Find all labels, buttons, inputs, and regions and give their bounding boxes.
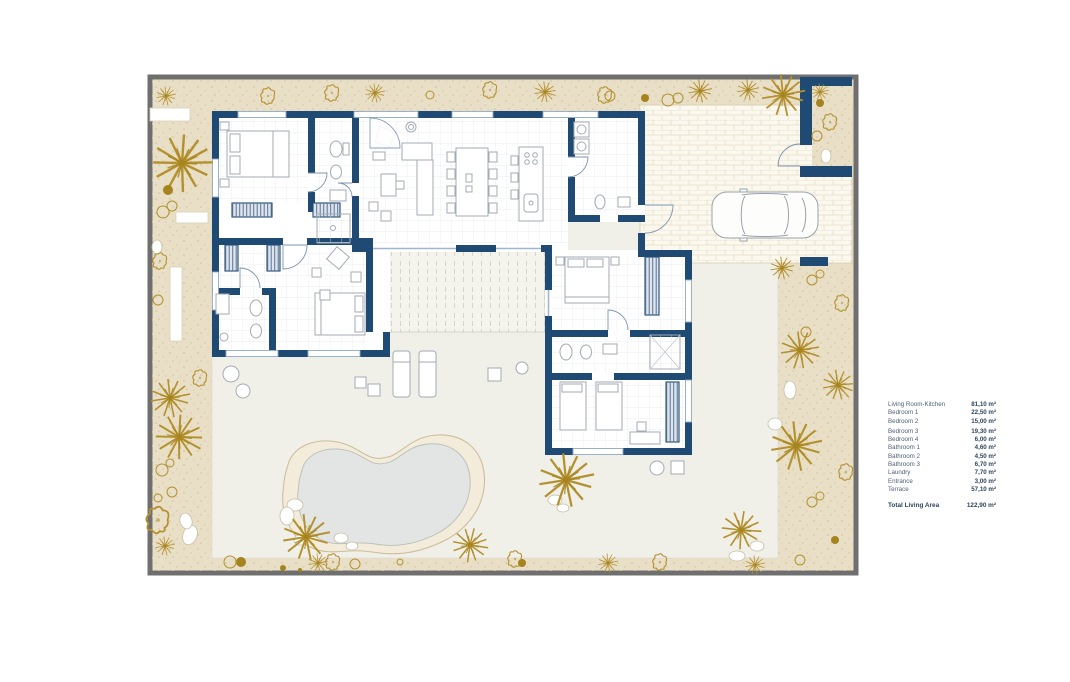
legend-row: Bedroom 3 19,30 m² — [888, 428, 996, 436]
legend-label: Terrace — [888, 486, 909, 494]
legend-label: Bedroom 2 — [888, 418, 918, 426]
legend-value: 6,70 m² — [975, 461, 996, 469]
legend-label: Bathroom 2 — [888, 453, 920, 461]
legend-row: Bathroom 2 4,50 m² — [888, 453, 996, 461]
legend-row: Bedroom 1 22,50 m² — [888, 409, 996, 417]
legend-value: 4,60 m² — [975, 444, 996, 452]
legend-value: 6,00 m² — [975, 436, 996, 444]
legend-value: 22,50 m² — [971, 409, 996, 417]
bed-double-1 — [220, 122, 289, 187]
legend-label: Bedroom 1 — [888, 409, 918, 417]
legend-value: 3,00 m² — [975, 478, 996, 486]
legend-label: Living Room-Kitchen — [888, 401, 945, 409]
legend-label: Bathroom 1 — [888, 444, 920, 452]
legend-label: Laundry — [888, 469, 910, 477]
legend-total-value: 122,90 m² — [967, 501, 996, 510]
legend-row: Laundry 7,70 m² — [888, 469, 996, 477]
legend-label: Bedroom 4 — [888, 436, 918, 444]
legend-row: Terrace 57,10 m² — [888, 486, 996, 494]
legend-value: 4,50 m² — [975, 453, 996, 461]
legend-value: 81,10 m² — [971, 401, 996, 409]
legend-label: Bathroom 3 — [888, 461, 920, 469]
legend-total-row: Total Living Area 122,90 m² — [888, 501, 996, 510]
legend-row: Bathroom 3 6,70 m² — [888, 461, 996, 469]
legend-label: Entrance — [888, 478, 913, 486]
legend-row: Bathroom 1 4,60 m² — [888, 444, 996, 452]
area-legend: Living Room-Kitchen 81,10 m² Bedroom 1 2… — [888, 401, 996, 510]
legend-row: Living Room-Kitchen 81,10 m² — [888, 401, 996, 409]
legend-value: 7,70 m² — [975, 469, 996, 477]
legend-value: 15,00 m² — [971, 418, 996, 426]
car-icon — [712, 189, 818, 241]
legend-row: Bedroom 2 15,00 m² — [888, 418, 996, 426]
floor-plan-page: Living Room-Kitchen 81,10 m² Bedroom 1 2… — [0, 0, 1070, 682]
legend-row: Entrance 3,00 m² — [888, 478, 996, 486]
deck — [373, 247, 545, 332]
legend-value: 57,10 m² — [971, 486, 996, 494]
legend-label: Bedroom 3 — [888, 428, 918, 436]
legend-total-label: Total Living Area — [888, 501, 939, 510]
legend-value: 19,30 m² — [971, 428, 996, 436]
floor-plan-drawing — [0, 0, 1070, 682]
legend-row: Bedroom 4 6,00 m² — [888, 436, 996, 444]
